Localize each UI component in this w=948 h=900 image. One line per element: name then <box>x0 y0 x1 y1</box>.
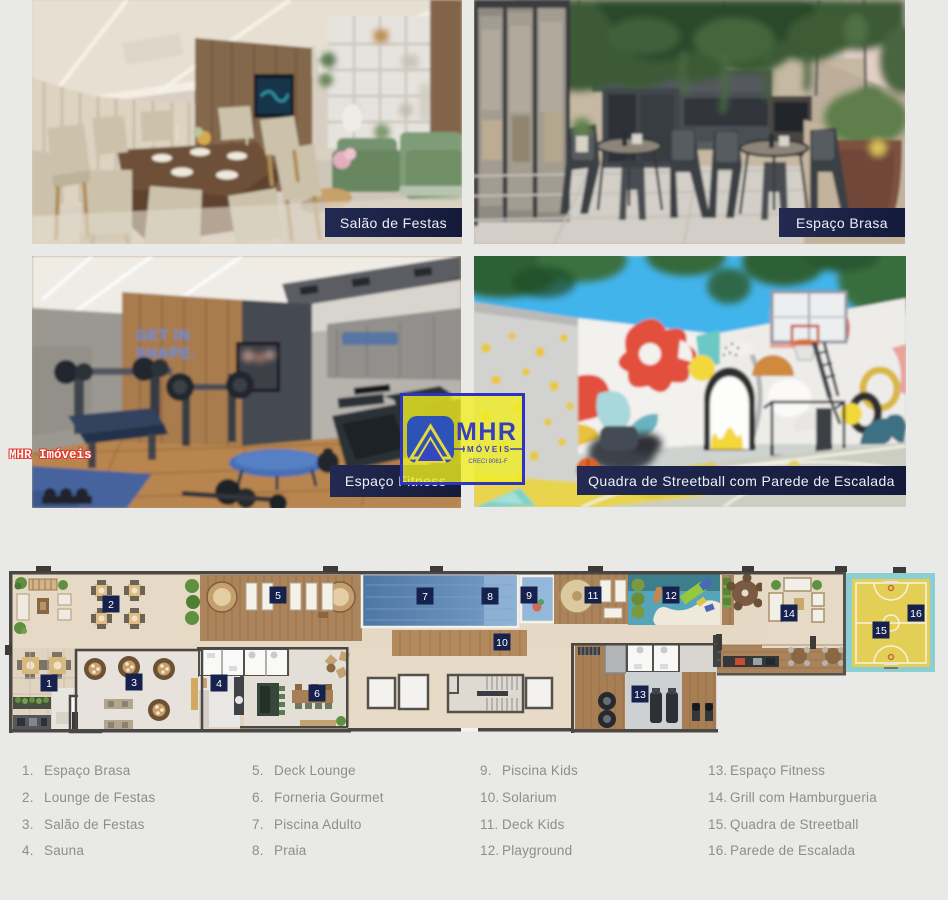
svg-text:5: 5 <box>275 590 281 602</box>
svg-text:8: 8 <box>487 591 493 603</box>
svg-text:11: 11 <box>588 590 599 602</box>
svg-text:3: 3 <box>131 677 137 689</box>
svg-text:1: 1 <box>46 678 52 690</box>
svg-text:4: 4 <box>216 678 222 690</box>
svg-text:14: 14 <box>783 608 795 620</box>
svg-text:CRECI 8061-F: CRECI 8061-F <box>468 459 508 465</box>
svg-text:6: 6 <box>314 688 320 700</box>
svg-text:7: 7 <box>422 591 428 603</box>
svg-text:GET IN: GET IN <box>136 328 190 344</box>
svg-text:16: 16 <box>910 608 922 620</box>
svg-text:13: 13 <box>634 689 646 701</box>
svg-text:10: 10 <box>496 637 508 649</box>
svg-text:2: 2 <box>108 599 114 611</box>
svg-text:IMÓVEIS: IMÓVEIS <box>463 445 512 454</box>
svg-text:15: 15 <box>875 625 887 637</box>
svg-text:9: 9 <box>526 590 532 602</box>
svg-text:MHR: MHR <box>456 418 517 446</box>
svg-text:12: 12 <box>665 590 677 602</box>
